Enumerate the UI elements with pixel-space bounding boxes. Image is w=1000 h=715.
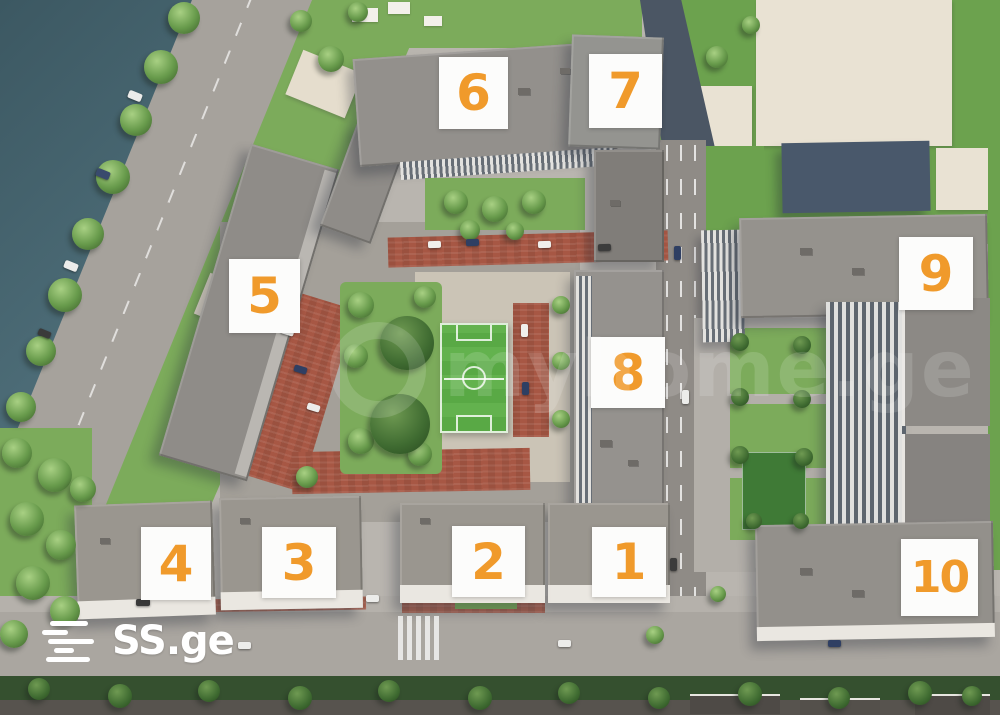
- crosswalk-bar: [425, 616, 430, 660]
- tree: [72, 218, 104, 250]
- building-label-5-number: 5: [247, 267, 282, 325]
- roof-vent: [600, 440, 612, 447]
- site-plan-render: 1 2 3 4 5 6 7 8 9 10 myhome.ge SS.ge: [0, 0, 1000, 715]
- crosswalk-bar: [434, 616, 439, 660]
- car: [428, 241, 441, 248]
- logo-bar: [42, 630, 68, 635]
- tree: [552, 296, 570, 314]
- context-dark-building: [781, 141, 930, 214]
- logo-bar: [50, 621, 88, 626]
- tree: [108, 684, 132, 708]
- tree: [16, 566, 50, 600]
- car: [828, 640, 841, 647]
- tree: [46, 530, 76, 560]
- crosswalk-bar: [398, 616, 403, 660]
- building-label-6-number: 6: [456, 64, 491, 122]
- logo-bar: [48, 639, 94, 644]
- ss-ge-logo-icon: [38, 621, 100, 662]
- tree: [646, 626, 664, 644]
- car: [674, 246, 681, 260]
- roof-vent: [100, 538, 110, 544]
- building-label-7-number: 7: [608, 62, 643, 120]
- crosswalk-bar: [416, 616, 421, 660]
- tree: [648, 687, 670, 709]
- building-label-1-number: 1: [612, 533, 647, 591]
- tree: [348, 2, 368, 22]
- tree: [144, 50, 178, 84]
- tree: [38, 458, 72, 492]
- tree: [468, 686, 492, 710]
- tree: [444, 190, 468, 214]
- car: [238, 642, 251, 649]
- building-label-2-number: 2: [471, 533, 506, 591]
- watermark-text: myhome.ge: [444, 325, 976, 415]
- tree: [731, 446, 749, 464]
- roof-vent: [420, 518, 430, 524]
- ss-ge-logo-text: SS.ge: [112, 618, 234, 664]
- tree: [962, 686, 982, 706]
- tree: [828, 687, 850, 709]
- building-label-4: 4: [141, 527, 211, 600]
- car: [558, 640, 571, 647]
- tree: [460, 220, 480, 240]
- building-label-3-number: 3: [282, 534, 317, 592]
- building-label-4-number: 4: [159, 535, 194, 593]
- tree: [710, 586, 726, 602]
- tree: [296, 466, 318, 488]
- roof-vent: [518, 88, 530, 95]
- car: [366, 595, 379, 602]
- tree: [70, 476, 96, 502]
- tree: [28, 678, 50, 700]
- context-small-building: [424, 16, 442, 26]
- ss-ge-logo: SS.ge: [38, 618, 234, 664]
- context-small-building: [388, 2, 410, 14]
- tree: [120, 104, 152, 136]
- top-right-pad-small: [936, 148, 990, 210]
- roof-vent: [560, 68, 570, 74]
- crosswalk-bar: [407, 616, 412, 660]
- watermark: myhome.ge: [330, 322, 976, 418]
- roof-vent: [610, 200, 620, 206]
- tree: [746, 513, 762, 529]
- context-roof: [690, 694, 780, 714]
- watermark-logo-circle: [330, 322, 426, 418]
- tree: [742, 16, 760, 34]
- building-label-10: 10: [901, 539, 978, 616]
- tree: [318, 46, 344, 72]
- building-6-facade: [400, 147, 615, 180]
- tree: [290, 10, 312, 32]
- tree: [506, 222, 524, 240]
- roof-vent: [852, 590, 864, 597]
- building-label-9-number: 9: [919, 245, 954, 303]
- tree: [10, 502, 44, 536]
- tree: [558, 682, 580, 704]
- tree: [793, 513, 809, 529]
- tree: [26, 336, 56, 366]
- tree: [48, 278, 82, 312]
- tree: [795, 448, 813, 466]
- building-label-1: 1: [592, 527, 666, 597]
- car: [466, 239, 479, 246]
- tree: [414, 286, 436, 308]
- tree: [348, 292, 374, 318]
- logo-bar: [46, 657, 90, 662]
- car: [538, 241, 551, 248]
- building-label-2: 2: [452, 526, 525, 597]
- tree: [378, 680, 400, 702]
- building-label-6: 6: [439, 57, 508, 129]
- tree: [288, 686, 312, 710]
- tree: [482, 196, 508, 222]
- building-label-5: 5: [229, 259, 300, 333]
- tree: [2, 438, 32, 468]
- tree: [908, 681, 932, 705]
- building-label-10-number: 10: [911, 552, 968, 603]
- building-label-3: 3: [262, 527, 336, 598]
- tree: [198, 680, 220, 702]
- roof-vent: [240, 518, 250, 524]
- tree: [0, 620, 28, 648]
- building-label-9: 9: [899, 237, 973, 310]
- car: [670, 558, 677, 571]
- roof-vent: [800, 568, 812, 575]
- tree: [168, 2, 200, 34]
- tree: [738, 682, 762, 706]
- building-label-7: 7: [589, 54, 662, 128]
- tree: [522, 190, 546, 214]
- top-right-pad: [756, 0, 952, 146]
- tree: [6, 392, 36, 422]
- roof-vent: [852, 268, 864, 275]
- logo-bar: [54, 648, 74, 653]
- roof-vent: [800, 248, 812, 255]
- car: [598, 244, 611, 251]
- roof-vent: [628, 460, 638, 466]
- car: [136, 599, 150, 606]
- tree: [706, 46, 728, 68]
